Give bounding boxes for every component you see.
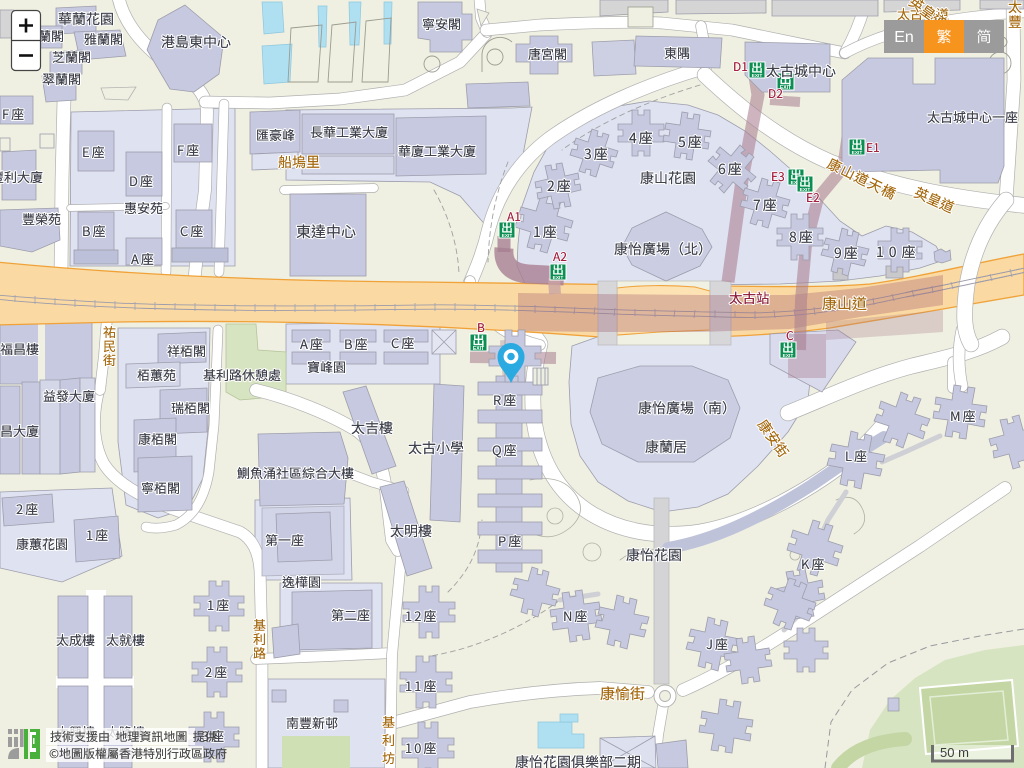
svg-text:EXIT: EXIT bbox=[553, 275, 564, 281]
svg-text:50 m: 50 m bbox=[940, 745, 969, 760]
svg-text:EXIT: EXIT bbox=[502, 233, 513, 239]
svg-text:EXIT: EXIT bbox=[852, 150, 863, 156]
svg-text:EXIT: EXIT bbox=[783, 353, 794, 359]
svg-text:En: En bbox=[894, 29, 914, 46]
svg-text:EXIT: EXIT bbox=[800, 187, 811, 193]
svg-text:EXIT: EXIT bbox=[752, 73, 763, 79]
svg-text:EXIT: EXIT bbox=[473, 346, 485, 352]
